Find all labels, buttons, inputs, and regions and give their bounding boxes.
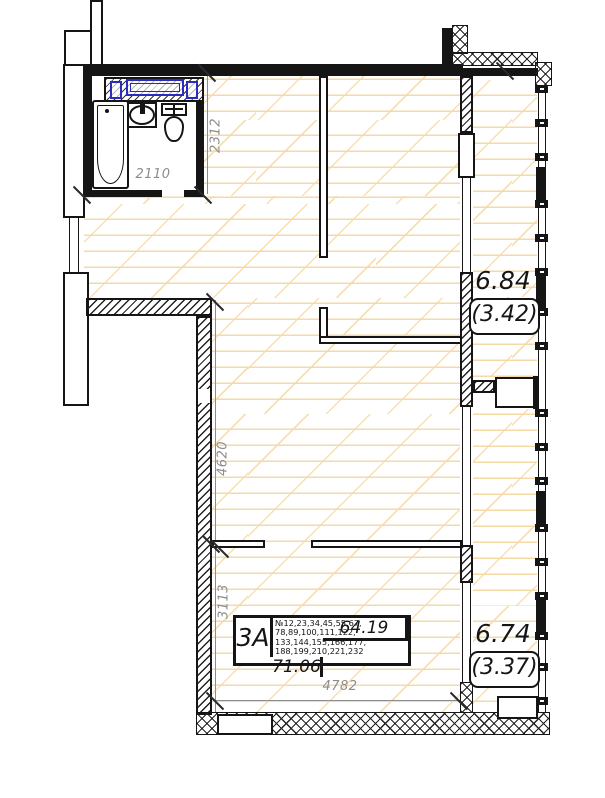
glazing-mullion — [535, 153, 548, 161]
insulation-top-corner — [535, 62, 552, 86]
bathtub-inner — [97, 105, 124, 184]
vent-channel-right-icon — [186, 81, 198, 99]
unit-numbers-line: 188,199,210,221,232 — [275, 647, 322, 656]
top-left-corner-block — [64, 30, 92, 66]
glazing-mullion — [535, 558, 548, 566]
bottom-window-block — [217, 714, 273, 735]
extension-line-bottom — [214, 700, 460, 701]
right-pier-top — [460, 76, 473, 133]
apartment-info-table: 3А 64.19 №12,23,34,45,55,67, 78,89,100,1… — [233, 615, 411, 666]
balcony-divider-panel — [495, 377, 535, 408]
top-wall-right — [463, 68, 538, 76]
toilet-bowl-icon — [164, 116, 184, 142]
dimension-2312: 2312 — [209, 106, 224, 166]
partition-mid-horizontal — [319, 336, 462, 344]
glazing-mullion — [535, 524, 548, 532]
dimension-2110: 2110 — [133, 167, 173, 182]
balcony-divider-stub — [473, 380, 495, 393]
partition-top-vertical — [319, 76, 328, 258]
flat-type-cell: 3А — [236, 618, 273, 657]
dimension-3113: 3113 — [217, 572, 232, 632]
left-wall-window — [69, 218, 79, 272]
bearing-wall-vertical — [196, 316, 212, 715]
dimension-4620: 4620 — [216, 429, 231, 489]
floor-hatch-top-strip — [204, 76, 460, 196]
toilet-tank-cross-v — [173, 104, 175, 114]
vent-channel-left-icon — [110, 81, 122, 99]
glazing-post — [536, 599, 546, 632]
left-wall-pier-lower — [63, 272, 89, 406]
glazing-mullion — [535, 477, 548, 485]
area-total-cell: 71.06 — [273, 657, 323, 677]
sink-tap-icon — [140, 100, 145, 114]
right-pier-block — [458, 133, 475, 178]
glazing-post — [536, 491, 546, 524]
balcony-upper-area-reduced: (3.42) — [469, 298, 540, 335]
glazing-mullion — [535, 342, 548, 350]
glazing-mullion — [535, 409, 548, 417]
bathtub-icon — [92, 100, 129, 189]
glazing-mullion — [535, 85, 548, 93]
balcony-upper-area: 6.84 — [470, 266, 536, 295]
vent-channel-main-icon — [126, 79, 184, 96]
bathroom-left-wall — [84, 76, 92, 196]
glazing-mullion — [535, 234, 548, 242]
extension-line-left — [215, 300, 216, 712]
balcony-equipment-pad — [497, 696, 538, 719]
glazing-mullion — [535, 119, 548, 127]
top-right-wall-stub — [442, 28, 452, 68]
bathroom-right-wall — [196, 100, 204, 196]
floor-hatch-hall — [84, 196, 460, 298]
glazing-mullion — [535, 200, 548, 208]
partition-lower-right — [311, 540, 462, 548]
unit-numbers-cell: №12,23,34,45,55,67, 78,89,100,111,122, 1… — [273, 618, 323, 657]
glazing-mullion — [535, 268, 548, 276]
bearing-wall-horizontal — [86, 298, 212, 316]
vent-channel-inner — [130, 83, 180, 92]
right-pier-lower — [460, 545, 473, 583]
bathtub-drain — [105, 109, 109, 113]
glazing-mullion — [535, 592, 548, 600]
insulation-top-vertical — [452, 25, 468, 54]
bearing-wall-gap — [198, 389, 210, 403]
insulation-top-band — [452, 52, 538, 66]
glazing-mullion — [535, 443, 548, 451]
dimension-4782: 4782 — [310, 679, 370, 694]
balcony-window-upper — [462, 178, 471, 272]
glazing-mullion — [535, 632, 548, 640]
balcony-lower-area: 6.74 — [470, 619, 536, 648]
glazing-post — [536, 167, 546, 200]
floor-plan: 2312 2110 4620 3113 4782 6.84 (3.42) 6.7… — [0, 0, 605, 798]
top-wall — [84, 64, 463, 76]
balcony-window-middle — [462, 407, 471, 545]
bathroom-bottom-wall-left — [84, 190, 162, 197]
balcony-lower-area-reduced: (3.37) — [469, 651, 540, 688]
